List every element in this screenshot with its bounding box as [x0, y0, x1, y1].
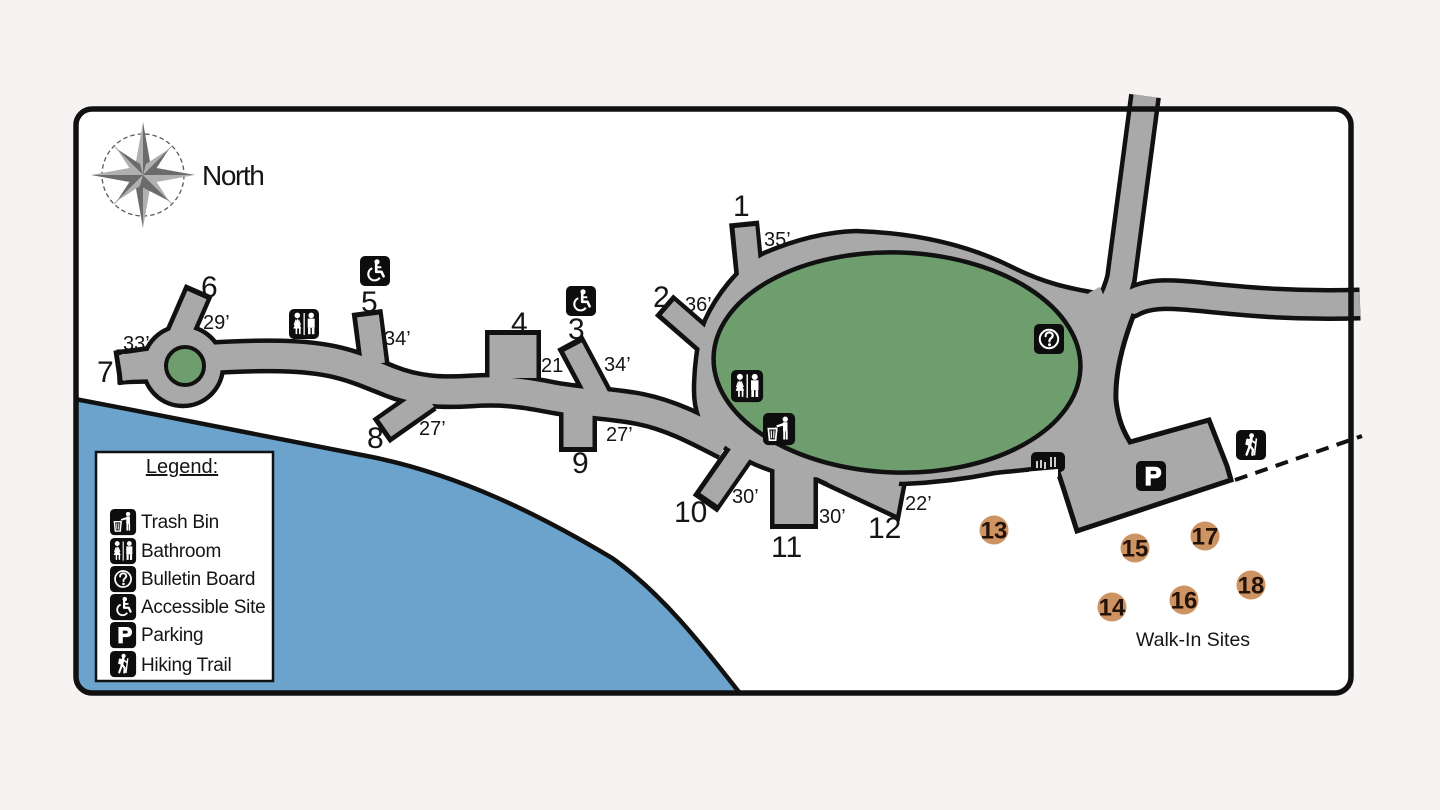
svg-text:1: 1 — [733, 190, 750, 223]
svg-text:12: 12 — [868, 512, 901, 545]
svg-text:Bathroom: Bathroom — [141, 541, 221, 562]
svg-text:29’: 29’ — [203, 312, 230, 334]
svg-text:16: 16 — [1171, 588, 1198, 615]
svg-text:21’: 21’ — [541, 355, 568, 377]
svg-text:Accessible Site: Accessible Site — [141, 597, 265, 618]
svg-text:36’: 36’ — [685, 294, 712, 316]
svg-text:10: 10 — [674, 496, 707, 529]
svg-text:4: 4 — [511, 307, 528, 340]
svg-text:Hiking Trail: Hiking Trail — [141, 655, 231, 676]
svg-text:18: 18 — [1238, 573, 1265, 600]
svg-text:3: 3 — [568, 313, 585, 346]
svg-text:27’: 27’ — [419, 418, 446, 440]
svg-text:30’: 30’ — [732, 486, 759, 508]
svg-text:North: North — [202, 160, 263, 191]
svg-text:27’: 27’ — [606, 424, 633, 446]
svg-text:Bulletin Board: Bulletin Board — [141, 569, 255, 590]
svg-text:9: 9 — [572, 447, 589, 480]
svg-text:7: 7 — [97, 356, 114, 389]
svg-text:Trash Bin: Trash Bin — [141, 512, 219, 533]
svg-text:6: 6 — [201, 271, 218, 304]
svg-text:34’: 34’ — [384, 328, 411, 350]
svg-text:35’: 35’ — [764, 229, 791, 251]
svg-text:8: 8 — [367, 422, 384, 455]
svg-text:22’: 22’ — [905, 493, 932, 515]
svg-text:2: 2 — [653, 281, 670, 314]
svg-text:30’: 30’ — [819, 506, 846, 528]
svg-text:11: 11 — [771, 531, 802, 564]
svg-text:17: 17 — [1192, 524, 1219, 551]
svg-text:33’: 33’ — [123, 333, 150, 355]
svg-text:15: 15 — [1122, 536, 1149, 563]
svg-text:Walk-In Sites: Walk-In Sites — [1136, 629, 1250, 651]
svg-text:14: 14 — [1099, 595, 1126, 622]
svg-text:13: 13 — [981, 518, 1008, 545]
svg-text:5: 5 — [361, 286, 378, 319]
svg-text:Legend:: Legend: — [146, 456, 218, 478]
svg-text:34’: 34’ — [604, 354, 631, 376]
svg-text:Parking: Parking — [141, 625, 203, 646]
